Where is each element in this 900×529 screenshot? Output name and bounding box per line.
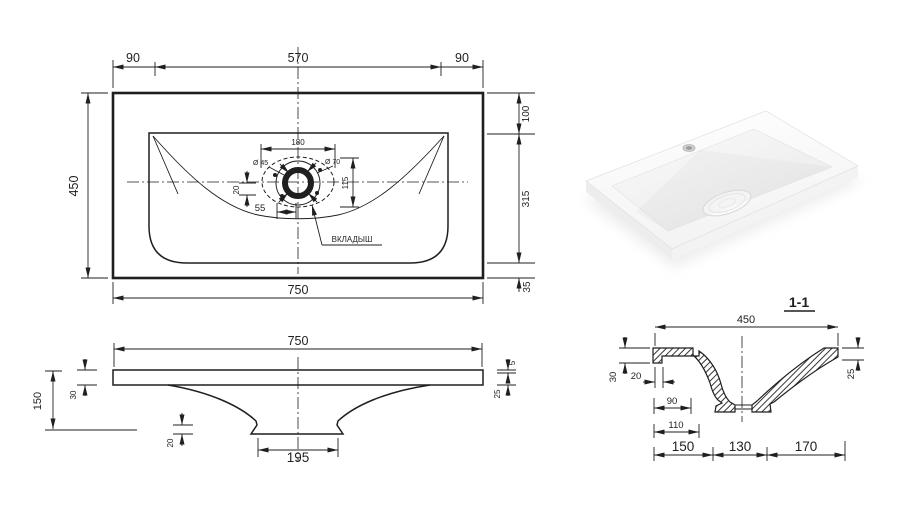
- dim-front-width: 750: [288, 334, 309, 348]
- dim-front-edge: 25: [493, 389, 502, 398]
- dim-section-90: 90: [667, 396, 678, 407]
- plan-view: Ø 45 Ø 70 180 115 20 55 ВКЛАДЫШ: [67, 47, 535, 304]
- dim-foot-width: 195: [287, 450, 310, 465]
- front-view: 750 150 30 20 195 5 25: [32, 334, 517, 465]
- dim-plan-depth: 450: [67, 176, 81, 197]
- drawing-svg: Ø 45 Ø 70 180 115 20 55 ВКЛАДЫШ: [0, 0, 900, 529]
- dim-front-rim: 30: [69, 390, 78, 399]
- technical-drawing-sheet: Ø 45 Ø 70 180 115 20 55 ВКЛАДЫШ: [0, 0, 900, 529]
- dim-right-bottom: 35: [522, 281, 533, 293]
- dim-section-bottom-right: 170: [795, 439, 818, 454]
- plan-basin-crease-right: [419, 136, 444, 194]
- dim-top-left: 90: [126, 51, 140, 65]
- dim-front-height: 150: [32, 392, 44, 410]
- dim-right-top: 100: [521, 105, 532, 122]
- dim-top-center: 570: [288, 51, 309, 65]
- dim-right-middle: 315: [521, 190, 532, 207]
- dim-foot-height: 20: [166, 438, 175, 447]
- section-view: 1-1 450 30 20 90 110: [608, 294, 864, 461]
- dim-offset-down: 20: [232, 185, 241, 194]
- dim-section-110: 110: [668, 420, 683, 431]
- section-left-wall: [653, 348, 735, 412]
- dim-offset-right: 55: [255, 203, 266, 214]
- insert-leader: [312, 205, 322, 245]
- dim-section-rim-left: 30: [608, 372, 619, 383]
- dim-section-bottom-left: 150: [672, 439, 695, 454]
- section-right-wall: [752, 348, 838, 412]
- dim-plan-width: 750: [288, 283, 309, 297]
- dim-front-lip: 5: [508, 360, 517, 365]
- dim-drain-width: 180: [291, 138, 305, 147]
- section-title: 1-1: [789, 294, 809, 310]
- plan-bowl-curve: [153, 136, 444, 219]
- dim-top-right: 90: [455, 51, 469, 65]
- dim-drain-height: 115: [341, 176, 350, 189]
- dim-section-width: 450: [737, 314, 755, 326]
- insert-label: ВКЛАДЫШ: [332, 235, 373, 244]
- dim-insert-diameter: Ø 70: [325, 159, 340, 166]
- plan-basin-crease-left: [153, 136, 178, 194]
- dim-section-rim-right: 25: [846, 369, 857, 380]
- dim-section-bottom-center: 130: [729, 439, 752, 454]
- dim-section-wall: 20: [631, 371, 642, 382]
- faucet-hole-inner: [686, 146, 692, 149]
- product-photo: [584, 111, 862, 268]
- front-bowl-profile: [168, 385, 430, 434]
